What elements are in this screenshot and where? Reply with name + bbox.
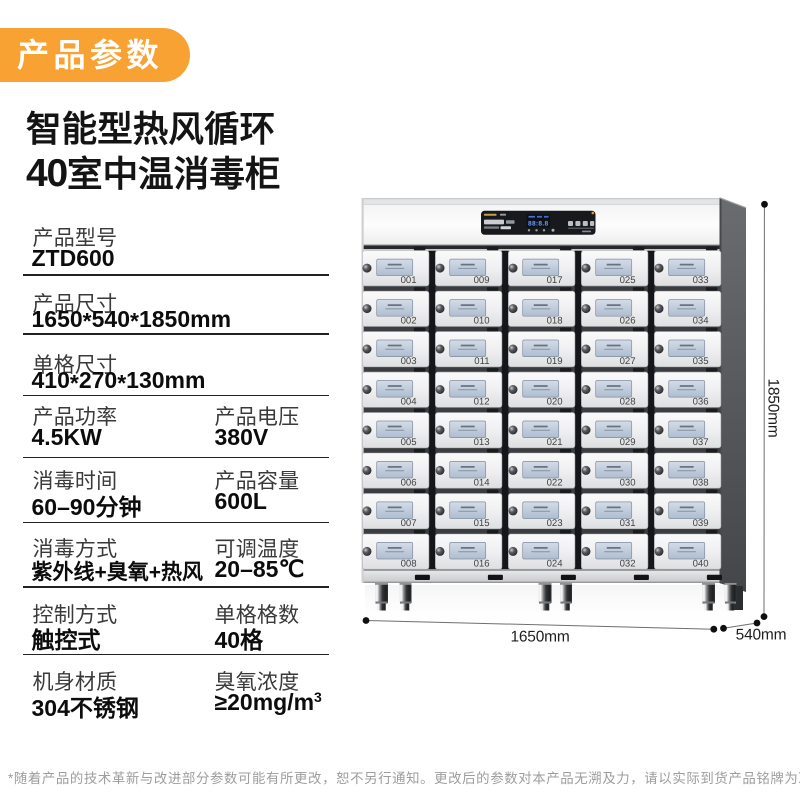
svg-text:035: 035 (693, 356, 709, 367)
svg-text:030: 030 (620, 477, 636, 488)
svg-text:020: 020 (547, 397, 563, 408)
svg-text:009: 009 (474, 275, 490, 286)
svg-text:015: 015 (474, 518, 490, 529)
svg-text:039: 039 (693, 518, 709, 529)
svg-text:016: 016 (474, 558, 490, 569)
svg-text:022: 022 (547, 477, 563, 488)
svg-text:1850mm: 1850mm (764, 378, 781, 437)
svg-text:033: 033 (693, 275, 709, 286)
svg-text:002: 002 (401, 316, 417, 327)
svg-text:013: 013 (474, 437, 490, 448)
svg-text:001: 001 (401, 275, 417, 286)
svg-text:008: 008 (401, 558, 417, 569)
svg-text:011: 011 (474, 356, 489, 367)
svg-text:010: 010 (474, 316, 490, 327)
svg-text:012: 012 (474, 397, 490, 408)
svg-text:040: 040 (693, 558, 709, 569)
svg-text:028: 028 (620, 397, 636, 408)
svg-text:005: 005 (401, 437, 417, 448)
svg-text:014: 014 (474, 477, 491, 488)
svg-text:025: 025 (620, 275, 636, 286)
svg-text:540mm: 540mm (736, 627, 787, 644)
svg-text:026: 026 (620, 316, 636, 327)
svg-text:029: 029 (620, 437, 636, 448)
svg-text:038: 038 (693, 477, 709, 488)
svg-text:1650mm: 1650mm (510, 629, 569, 646)
svg-text:019: 019 (547, 356, 563, 367)
svg-text:032: 032 (620, 558, 636, 569)
svg-text:017: 017 (547, 275, 563, 286)
svg-text:88:8.8: 88:8.8 (528, 221, 549, 228)
svg-text:006: 006 (401, 477, 417, 488)
svg-text:031: 031 (620, 518, 636, 529)
svg-text:021: 021 (547, 437, 563, 448)
svg-text:003: 003 (401, 356, 417, 367)
svg-text:018: 018 (547, 316, 563, 327)
svg-text:034: 034 (693, 316, 710, 327)
svg-text:037: 037 (693, 437, 709, 448)
svg-text:007: 007 (401, 518, 417, 529)
svg-text:004: 004 (401, 397, 418, 408)
svg-text:036: 036 (693, 397, 709, 408)
svg-text:023: 023 (547, 518, 563, 529)
svg-text:024: 024 (547, 558, 564, 569)
svg-text:027: 027 (620, 356, 636, 367)
